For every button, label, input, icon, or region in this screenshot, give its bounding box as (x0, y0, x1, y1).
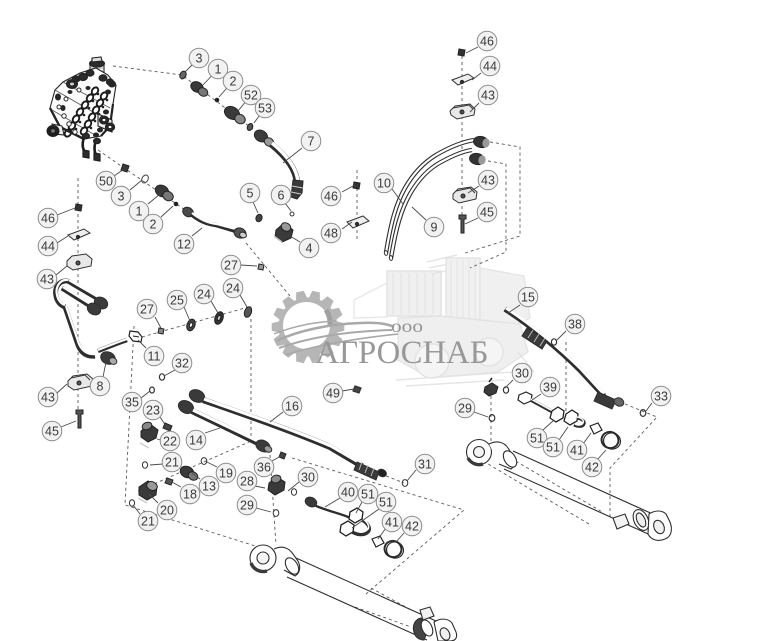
svg-text:2: 2 (230, 75, 237, 89)
svg-text:40: 40 (341, 486, 355, 500)
svg-text:33: 33 (654, 390, 668, 404)
svg-text:23: 23 (146, 404, 160, 418)
svg-text:32: 32 (175, 357, 189, 371)
svg-text:8: 8 (97, 380, 104, 394)
svg-text:36: 36 (257, 461, 271, 475)
svg-text:21: 21 (165, 456, 179, 470)
svg-text:46: 46 (480, 35, 494, 49)
svg-text:9: 9 (431, 221, 438, 235)
svg-text:20: 20 (160, 504, 174, 518)
svg-text:31: 31 (418, 458, 432, 472)
svg-text:1: 1 (136, 205, 143, 219)
svg-text:6: 6 (278, 189, 285, 203)
svg-text:49: 49 (326, 387, 340, 401)
svg-text:46: 46 (324, 190, 338, 204)
svg-text:АГРОСНАБ: АГРОСНАБ (316, 335, 489, 371)
svg-text:29: 29 (240, 499, 254, 513)
svg-text:19: 19 (219, 467, 233, 481)
svg-text:4: 4 (306, 242, 313, 256)
svg-text:39: 39 (543, 381, 557, 395)
svg-text:29: 29 (458, 402, 472, 416)
svg-text:11: 11 (148, 350, 161, 364)
svg-text:3: 3 (118, 190, 125, 204)
svg-text:7: 7 (308, 135, 315, 149)
svg-text:43: 43 (40, 273, 54, 287)
svg-text:43: 43 (481, 174, 495, 188)
svg-text:ооо: ооо (391, 316, 423, 336)
svg-text:27: 27 (140, 303, 154, 317)
svg-text:15: 15 (521, 291, 535, 305)
svg-text:3: 3 (196, 52, 203, 66)
svg-text:51: 51 (361, 488, 375, 502)
svg-text:51: 51 (546, 441, 560, 455)
svg-text:51: 51 (530, 432, 544, 446)
svg-text:22: 22 (163, 435, 177, 449)
svg-text:46: 46 (41, 212, 55, 226)
svg-text:16: 16 (285, 400, 299, 414)
svg-text:12: 12 (177, 238, 191, 252)
svg-text:48: 48 (324, 227, 338, 241)
svg-text:35: 35 (125, 396, 139, 410)
svg-text:38: 38 (568, 318, 582, 332)
svg-text:43: 43 (41, 391, 55, 405)
svg-text:45: 45 (480, 206, 494, 220)
svg-text:53: 53 (258, 102, 272, 116)
svg-text:30: 30 (301, 471, 315, 485)
svg-text:18: 18 (183, 488, 197, 502)
svg-text:10: 10 (377, 177, 391, 191)
svg-text:27: 27 (224, 259, 238, 273)
svg-text:44: 44 (41, 240, 55, 254)
svg-text:42: 42 (585, 461, 599, 475)
svg-text:52: 52 (244, 89, 258, 103)
svg-text:51: 51 (379, 496, 393, 510)
svg-text:14: 14 (189, 434, 203, 448)
svg-text:24: 24 (226, 282, 240, 296)
svg-text:2: 2 (150, 218, 157, 232)
svg-text:44: 44 (483, 60, 497, 74)
svg-text:13: 13 (202, 480, 216, 494)
svg-text:50: 50 (99, 175, 113, 189)
svg-text:5: 5 (247, 187, 254, 201)
svg-text:1: 1 (215, 63, 222, 77)
svg-text:25: 25 (170, 294, 184, 308)
svg-text:21: 21 (141, 515, 155, 529)
svg-text:24: 24 (197, 288, 211, 302)
svg-text:43: 43 (481, 89, 495, 103)
svg-text:45: 45 (45, 425, 59, 439)
svg-text:30: 30 (515, 367, 529, 381)
svg-text:42: 42 (405, 520, 419, 534)
svg-text:28: 28 (240, 475, 254, 489)
svg-text:41: 41 (385, 516, 399, 530)
svg-text:41: 41 (570, 444, 584, 458)
